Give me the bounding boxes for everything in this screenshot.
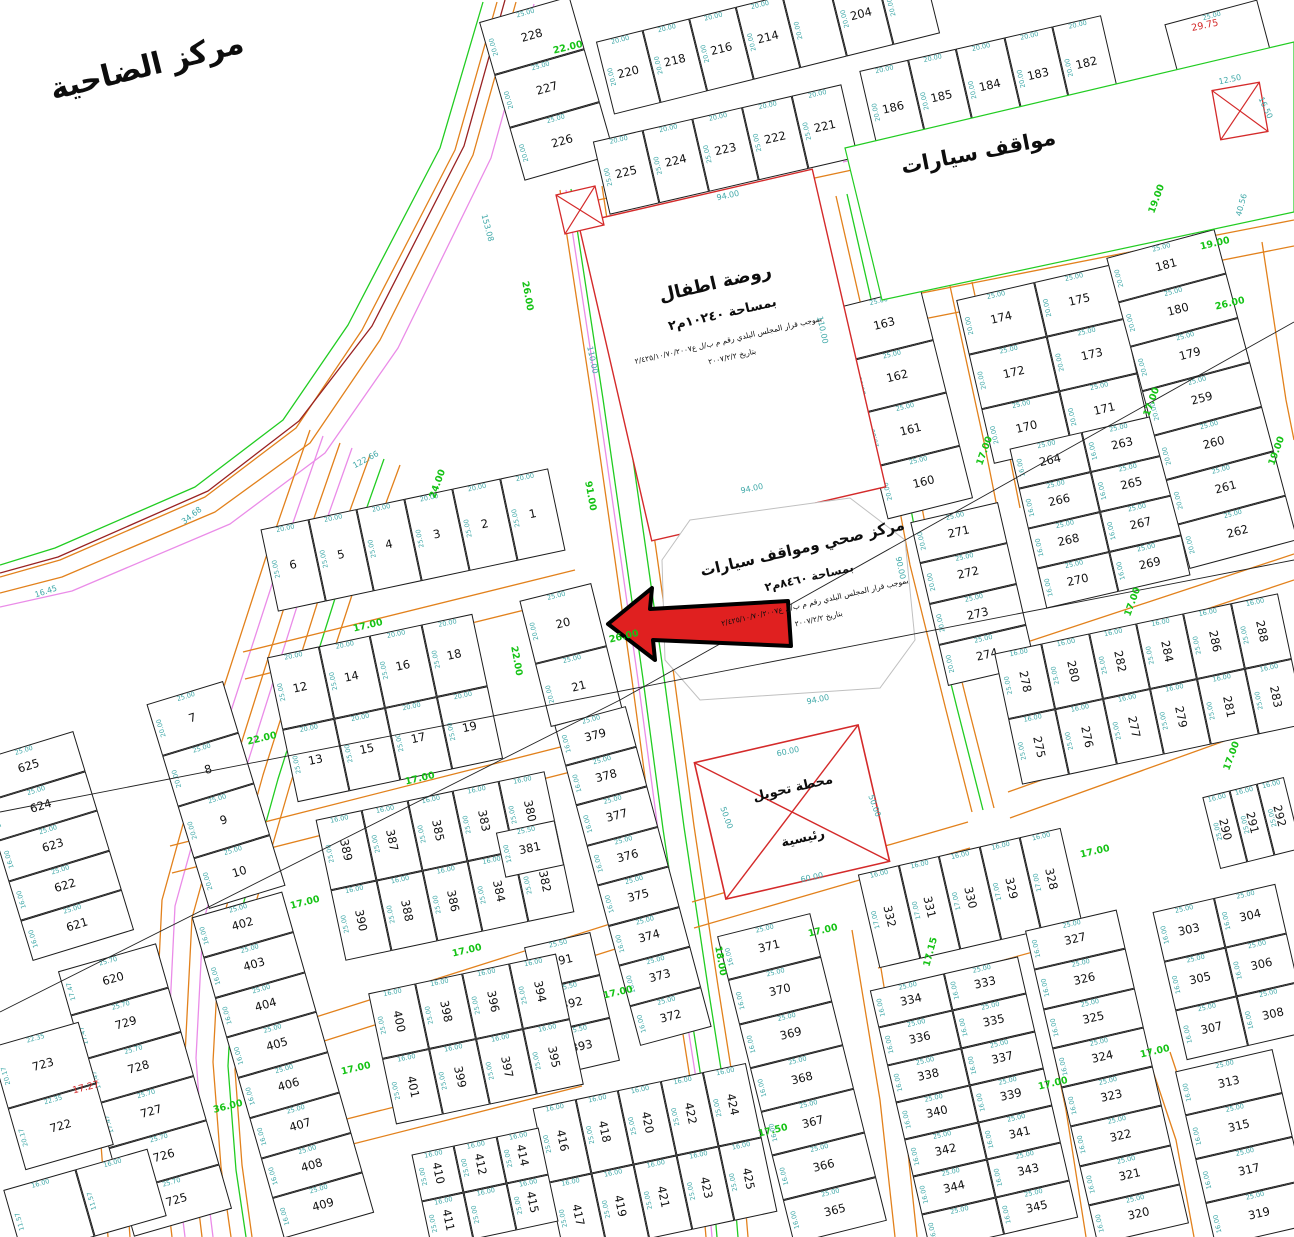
- special-areas-layer: [0, 0, 1294, 1237]
- hatched-square-icon: [556, 186, 604, 234]
- kindergarten-parcel: [578, 169, 885, 541]
- cadastral-map: 25.0020.0022825.0020.0022725.0020.002262…: [0, 0, 1294, 1237]
- parking-area: [845, 42, 1294, 300]
- transformer-station: [694, 725, 889, 899]
- health-center-parcel: [662, 498, 915, 700]
- hatched-square-icon: [1212, 82, 1268, 140]
